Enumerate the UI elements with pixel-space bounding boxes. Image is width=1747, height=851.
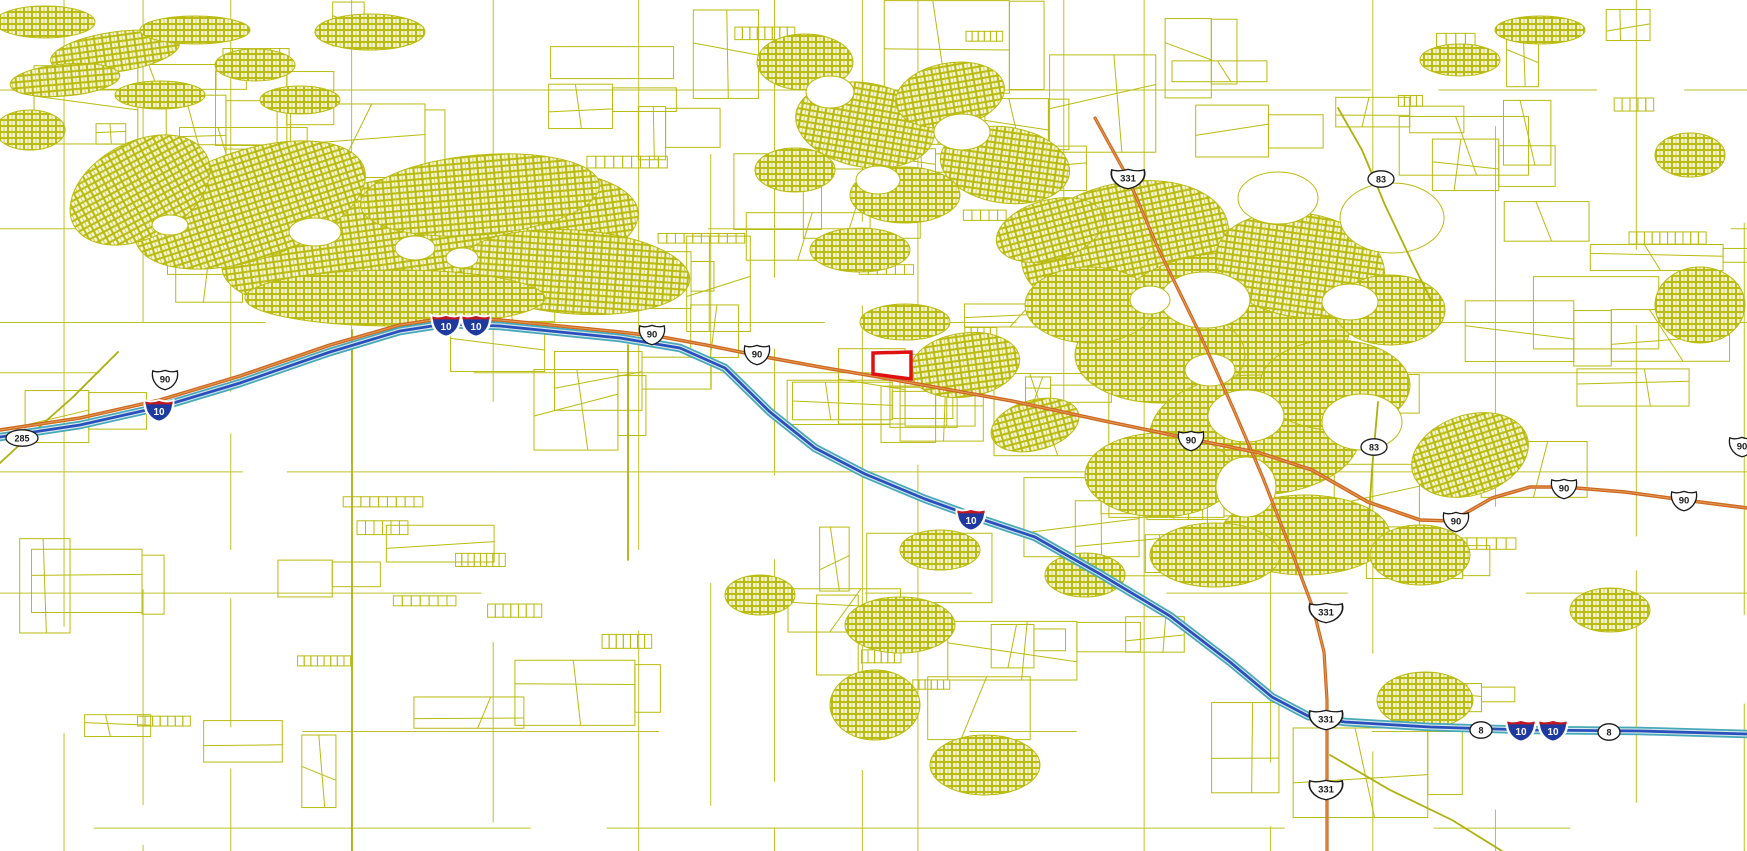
svg-text:8: 8 [1478, 725, 1483, 735]
svg-text:10: 10 [470, 322, 482, 333]
svg-text:10: 10 [440, 322, 452, 333]
svg-text:90: 90 [1451, 517, 1462, 528]
oval-shield-83: 83 [1368, 171, 1394, 187]
svg-text:10: 10 [965, 516, 977, 527]
svg-text:90: 90 [1679, 496, 1690, 507]
svg-text:331: 331 [1318, 715, 1335, 726]
highlighted-parcel[interactable] [873, 352, 911, 379]
oval-shield-285: 285 [6, 430, 38, 446]
svg-text:10: 10 [1515, 727, 1527, 738]
svg-text:90: 90 [752, 350, 763, 361]
svg-text:10: 10 [1547, 727, 1559, 738]
map-viewport[interactable]: 1010101010109090909090909090331331331331… [0, 0, 1747, 851]
svg-text:10: 10 [153, 407, 165, 418]
svg-text:90: 90 [647, 330, 658, 341]
svg-text:90: 90 [160, 375, 171, 386]
svg-text:83: 83 [1369, 442, 1379, 452]
svg-text:90: 90 [1186, 436, 1197, 447]
map-canvas[interactable]: 1010101010109090909090909090331331331331… [0, 0, 1747, 851]
oval-shield-83: 83 [1361, 439, 1387, 455]
svg-text:83: 83 [1376, 174, 1386, 184]
oval-shield-8: 8 [1470, 722, 1492, 738]
oval-shield-8: 8 [1598, 724, 1620, 740]
svg-text:285: 285 [14, 433, 29, 443]
svg-text:331: 331 [1318, 608, 1335, 619]
svg-text:331: 331 [1120, 174, 1137, 185]
svg-text:8: 8 [1606, 727, 1611, 737]
svg-text:90: 90 [1737, 442, 1747, 453]
svg-text:331: 331 [1318, 785, 1335, 796]
svg-text:90: 90 [1559, 484, 1570, 495]
